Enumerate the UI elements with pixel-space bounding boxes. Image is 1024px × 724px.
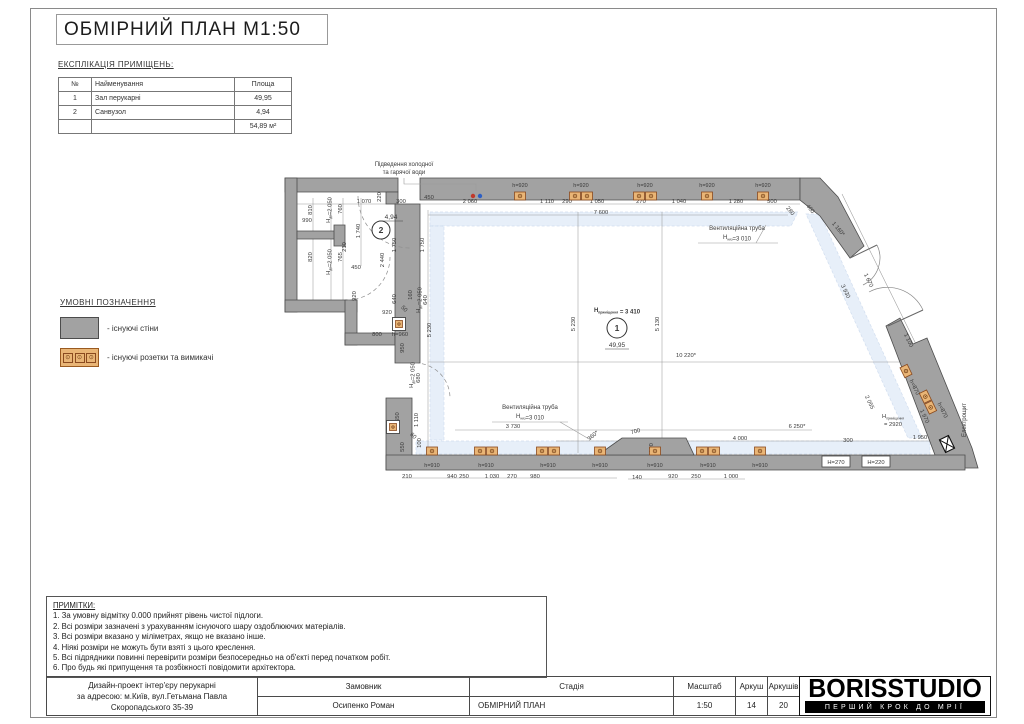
stage-value: ОБМІРНИЙ ПЛАН xyxy=(470,697,673,716)
socket-icon xyxy=(396,321,403,328)
height-step-label: H=270 xyxy=(827,460,844,466)
dimension-label: 1 030 xyxy=(485,474,500,480)
dimension-label: 920 xyxy=(382,310,392,316)
socket-glyph xyxy=(599,450,600,451)
logo-text: BORISSTUDIO xyxy=(808,677,982,701)
socket-height-label: h=920 xyxy=(699,183,714,189)
dimension-label: 1 670 xyxy=(862,273,874,289)
dimension-label: 210 xyxy=(342,242,348,252)
leader-line xyxy=(560,422,589,439)
wall xyxy=(345,333,395,345)
note-line: 1. За умовну відмітку 0.000 прийнят ріве… xyxy=(53,611,540,621)
dimension-label: 450 xyxy=(424,195,434,201)
dimension-label: 360* xyxy=(587,430,601,443)
wall xyxy=(598,438,694,455)
socket-glyph xyxy=(706,195,707,196)
sheet-number-cell: Аркуш 14 xyxy=(735,676,768,716)
project-line: Дизайн-проект інтер'єру перукарні xyxy=(88,680,215,691)
dimension-label: 1 740 xyxy=(356,224,362,239)
dimension-label: 5 230 xyxy=(427,323,433,338)
dimension-label: 250 xyxy=(459,474,469,480)
room-area: 49,95 xyxy=(609,342,626,349)
dimension-label: 7 600 xyxy=(594,210,609,216)
socket-glyph xyxy=(491,450,492,451)
dimension-label: 990 xyxy=(302,218,312,224)
note-line: 5. Всі підрядники повинні перевірити роз… xyxy=(53,653,540,663)
door-swing xyxy=(869,287,923,310)
sheets-total-cell: Аркушів 20 xyxy=(767,676,800,716)
note-line: 6. Про будь які припущення та розбіжност… xyxy=(53,663,540,673)
project-description: Дизайн-проект інтер'єру перукарніза адре… xyxy=(46,676,258,716)
dimension-label: 1 110 xyxy=(540,199,554,205)
dimension-label: 800 xyxy=(372,332,382,338)
dimension-label: Hдв=2 050 xyxy=(409,362,416,388)
socket-glyph xyxy=(574,195,575,196)
dimension-label: 550 xyxy=(400,442,406,452)
annotation-label: та гарячої води xyxy=(383,170,426,176)
scale-label: Масштаб xyxy=(674,677,735,697)
dimension-label: 6 250* xyxy=(789,424,807,430)
note-line: 3. Всі розміри вказано у міліметрах, якщ… xyxy=(53,632,540,642)
dimension-label: 1 280 xyxy=(729,199,744,205)
socket-glyph xyxy=(553,450,554,451)
dimension-label: 765 xyxy=(338,252,344,262)
dimension-label: 2 060 xyxy=(463,199,478,205)
socket-glyph xyxy=(586,195,587,196)
dimension-label: 1 750 xyxy=(392,238,398,253)
room-number: 2 xyxy=(379,225,384,235)
socket-height-label: h=920 xyxy=(637,183,652,189)
socket-glyph xyxy=(650,195,651,196)
socket-glyph xyxy=(713,450,714,451)
dimension-label: = 2920 xyxy=(884,422,902,428)
dimension-label: 2 440 xyxy=(380,253,386,268)
studio-logo: BORISSTUDIO ПЕРШИЙ КРОК ДО МРІЇ xyxy=(799,676,991,716)
wall xyxy=(395,204,420,363)
dimension-label: 640 xyxy=(392,294,398,304)
dimension-label: 300 xyxy=(396,199,406,205)
dimension-label: 3 730 xyxy=(506,424,521,430)
dimension-label: 450 xyxy=(351,265,361,271)
socket-glyph xyxy=(541,450,542,451)
note-line: 4. Ніякі розміри не можуть бути взяті з … xyxy=(53,643,540,653)
dimension-label: 940 xyxy=(447,474,457,480)
dimension-label: 2 055 xyxy=(863,395,875,411)
wall xyxy=(297,231,338,239)
dimension-label: 10 220* xyxy=(676,353,697,359)
room-number: 1 xyxy=(615,323,620,333)
note-line: 2. Всі розміри зазначені з урахуванням і… xyxy=(53,622,540,632)
project-line: Скоропадського 35-39 xyxy=(111,702,193,713)
dimension-label: 270 xyxy=(507,474,517,480)
dimension-label: 820 xyxy=(308,252,314,262)
socket-height-label: h=910 xyxy=(592,463,607,469)
dimension-label: 210 xyxy=(402,474,412,480)
finish-band xyxy=(806,214,922,438)
dimension-label: 1 110 xyxy=(414,413,420,427)
customer-label: Замовник xyxy=(258,677,469,697)
dimension-label: 140 xyxy=(632,475,642,481)
socket-glyph xyxy=(519,195,520,196)
socket-height-label: h=910 xyxy=(647,463,662,469)
sheets-total-value: 20 xyxy=(768,697,799,716)
socket-glyph xyxy=(479,450,480,451)
room-area: 4,94 xyxy=(385,214,398,221)
annotation-label: Підведення холодної xyxy=(375,162,434,168)
sheet-number-value: 14 xyxy=(736,697,767,716)
annotation-label: Вентиляційна труба xyxy=(502,404,558,411)
socket-glyph xyxy=(701,450,702,451)
dimension-label: 5 130 xyxy=(655,317,661,332)
socket-height-label: h=910 xyxy=(752,463,767,469)
socket-height-label: h=910 xyxy=(424,463,439,469)
dimension-label: 1 040 xyxy=(672,199,687,205)
dimension-label: 1 950 xyxy=(913,435,928,441)
notes-heading: ПРИМІТКИ: xyxy=(53,601,540,611)
dimension-label: 220 xyxy=(377,192,383,202)
stage-label: Стадія xyxy=(470,677,673,697)
dimension-label: 950 xyxy=(400,343,406,353)
socket-height-label: h=920 xyxy=(512,183,527,189)
socket-glyph xyxy=(759,450,760,451)
customer-cell: Замовник Осипенко Роман xyxy=(257,676,470,716)
dimension-label: 810 xyxy=(308,205,314,215)
notes-lines: 1. За умовну відмітку 0.000 прийнят ріве… xyxy=(53,611,540,673)
socket-height-label: h=910 xyxy=(700,463,715,469)
dimension-label: 300 xyxy=(843,438,853,444)
dimension-label: 1 000 xyxy=(724,474,739,480)
dimension-label: 700 xyxy=(630,428,641,436)
socket-height-label: h=920 xyxy=(755,183,770,189)
dimension-label: 5 230 xyxy=(571,317,577,332)
socket-icon xyxy=(390,424,397,431)
dimension-label: 100 xyxy=(417,438,423,448)
dimension-label: 680 xyxy=(416,373,422,383)
height-step-label: H=220 xyxy=(867,460,884,466)
dimension-label: Hдв=2 050 xyxy=(326,249,333,275)
socket-glyph xyxy=(762,195,763,196)
dimension-label: 1 750 xyxy=(420,238,426,253)
title-block: Дизайн-проект інтер'єру перукарніза адре… xyxy=(46,676,996,716)
scale-value: 1:50 xyxy=(674,697,735,716)
scale-cell: Масштаб 1:50 xyxy=(673,676,736,716)
socket-glyph xyxy=(638,195,639,196)
hot-water-point xyxy=(471,194,475,198)
notes-block: ПРИМІТКИ: 1. За умовну відмітку 0.000 пр… xyxy=(46,596,547,678)
annotation-label: Hниз=3 010 xyxy=(516,414,545,421)
socket-glyph xyxy=(654,450,655,451)
dimension-label: 920 xyxy=(668,474,678,480)
annotation-label: Hниз=3 010 xyxy=(723,235,752,242)
dimension-label: Hдв=2 050 xyxy=(326,197,333,223)
drawing-sheet: ОБМІРНИЙ ПЛАН М1:50 ЕКСПЛІКАЦІЯ ПРИМІЩЕН… xyxy=(0,0,1024,724)
dimension-label: h=960 xyxy=(392,332,408,338)
dimension-label: 1 070 xyxy=(357,199,372,205)
socket-height-label: h=910 xyxy=(478,463,493,469)
room-height-label: Hприміщення = 3 410 xyxy=(594,308,641,315)
dimension-label: 160 xyxy=(408,290,414,300)
socket-glyph xyxy=(431,450,432,451)
dimension-label: 920 xyxy=(352,291,358,301)
dimension-label: 250 xyxy=(691,474,701,480)
wall xyxy=(420,178,800,200)
sheet-number-label: Аркуш xyxy=(736,677,767,697)
socket-height-label: h=920 xyxy=(573,183,588,189)
wall xyxy=(285,178,398,192)
customer-value: Осипенко Роман xyxy=(258,697,469,716)
sheets-total-label: Аркушів xyxy=(768,677,799,697)
annotation-label: Електрощит xyxy=(962,403,968,437)
door-leaf xyxy=(888,310,923,326)
cold-water-point xyxy=(478,194,482,198)
stage-cell: Стадія ОБМІРНИЙ ПЛАН xyxy=(469,676,674,716)
dimension-label: 760 xyxy=(338,204,344,214)
dimension-label: 640 xyxy=(423,295,429,305)
finish-band xyxy=(430,212,798,226)
dimension-label: 4 000 xyxy=(733,436,748,442)
annotation-label: Вентиляційна труба xyxy=(709,225,765,232)
dimension-label: 980 xyxy=(530,474,540,480)
socket-height-label: h=910 xyxy=(540,463,555,469)
project-line: за адресою: м.Київ, вул.Гетьмана Павла xyxy=(77,691,227,702)
wall xyxy=(285,178,297,312)
